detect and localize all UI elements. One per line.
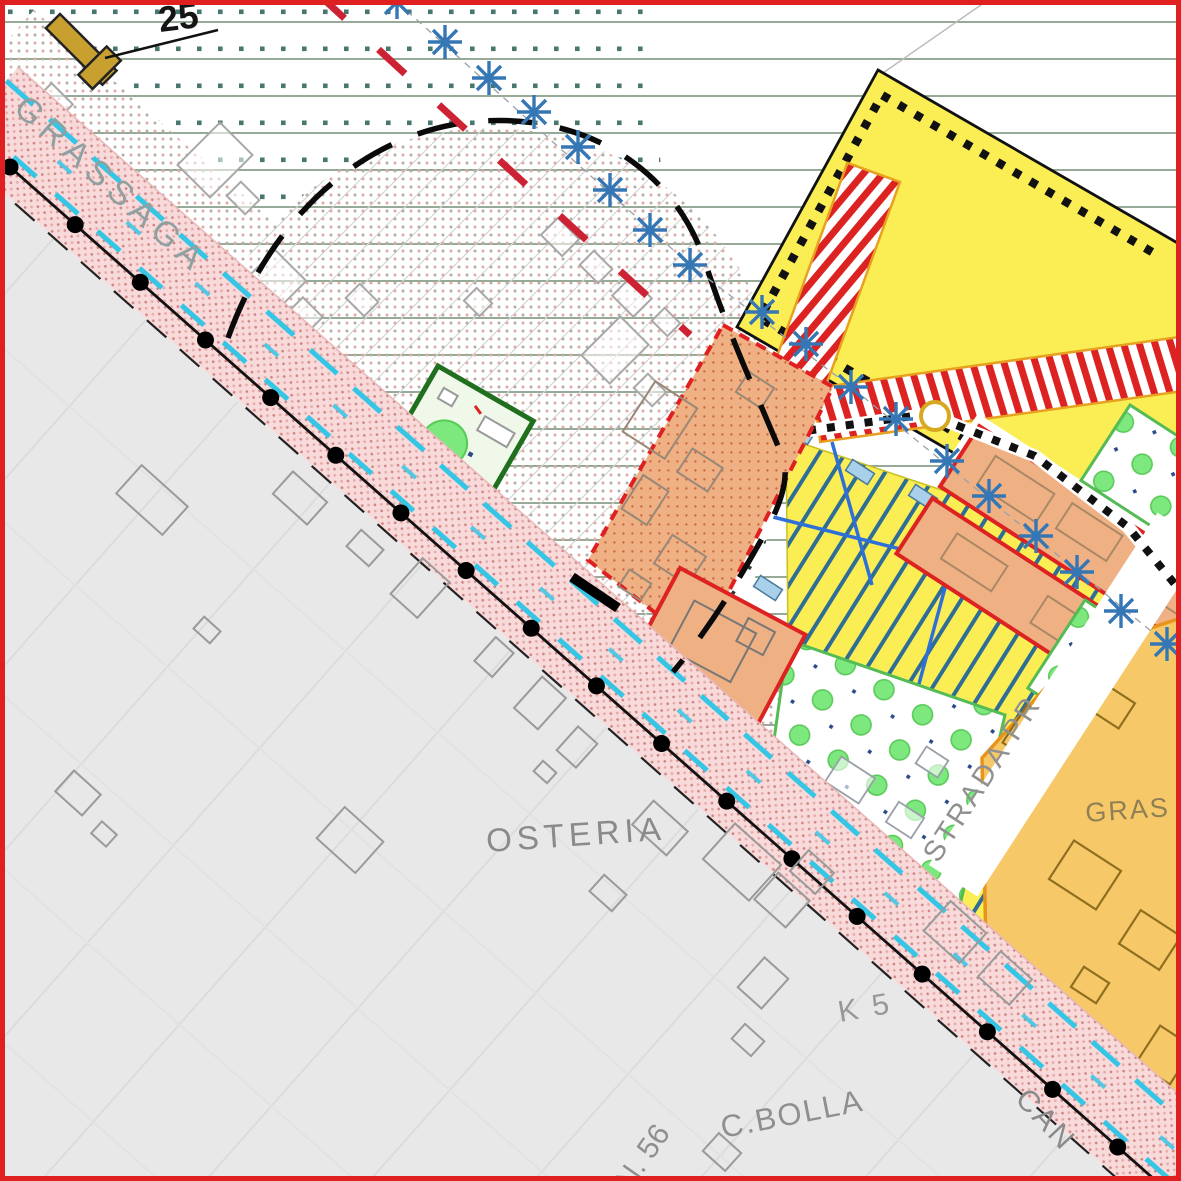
star-icon [834, 370, 868, 404]
star-icon [472, 61, 506, 95]
star-icon [593, 173, 627, 207]
star-icon [428, 25, 462, 59]
star-icon [972, 479, 1006, 513]
map-canvas: 25 VIA GRASSAGA OSTERIA K 5 C.BOLLA N. 5… [0, 0, 1181, 1181]
star-icon [879, 402, 913, 436]
zoning-map: 25 VIA GRASSAGA OSTERIA K 5 C.BOLLA N. 5… [0, 0, 1181, 1181]
well-circle-icon [921, 402, 949, 430]
star-icon [789, 327, 823, 361]
star-icon [745, 295, 779, 329]
star-icon [1104, 594, 1138, 628]
star-icon [1060, 555, 1094, 589]
star-icon [673, 248, 707, 282]
star-icon [930, 444, 964, 478]
star-icon [1019, 519, 1053, 553]
star-icon [561, 130, 595, 164]
label-gras: GRAS [1084, 792, 1170, 828]
star-icon [517, 95, 551, 129]
label-scale-marker: 25 [156, 0, 201, 40]
star-icon [633, 213, 667, 247]
